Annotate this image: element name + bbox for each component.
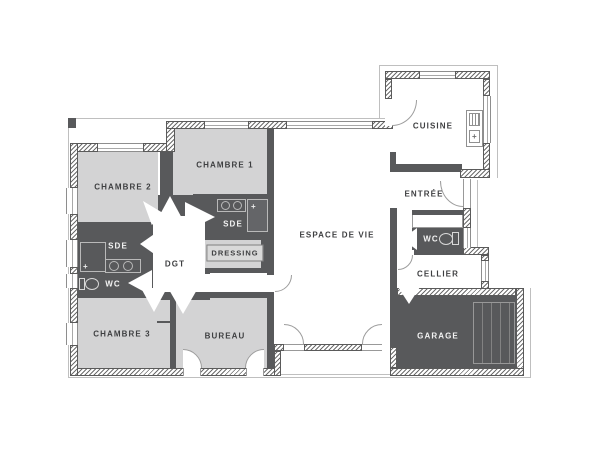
roof-outline-garage-right — [530, 288, 531, 378]
wall-bureau-right — [267, 292, 274, 372]
ext-wall-left-c — [70, 267, 78, 274]
wall-chambre3-closet — [157, 321, 173, 323]
room-dgt — [153, 216, 205, 292]
ext-wall-top-b — [248, 121, 287, 129]
window-cuisine-right — [483, 96, 491, 143]
bureau-door-right-threshold — [246, 368, 264, 376]
porch-wall-right — [390, 347, 397, 368]
label-chambre2: CHAMBRE 2 — [94, 183, 151, 192]
label-dgt: DGT — [165, 260, 185, 269]
ext-wall-front-top — [460, 169, 490, 178]
ext-wall-kitchen-top-b — [455, 71, 490, 79]
sink-bowl-icon — [123, 261, 133, 271]
front-door-opening — [463, 179, 471, 208]
label-chambre1: CHAMBRE 1 — [196, 161, 253, 170]
toilet-wc-right — [439, 233, 453, 245]
window-chambre2-top — [98, 143, 143, 152]
ext-wall-left-b — [70, 214, 78, 240]
wall-chambre2-chambre1 — [160, 152, 173, 198]
window-chambre1-top — [205, 121, 248, 129]
ext-wall-right-a — [463, 208, 471, 228]
shower-valve-icon: + — [251, 203, 256, 211]
ext-wall-garage-bottom — [390, 368, 524, 376]
window-espace-bay-top — [287, 121, 372, 129]
label-sde-left: SDE — [108, 242, 128, 251]
porch-edge-line — [281, 374, 390, 375]
wall-chambre3-bureau — [170, 298, 176, 368]
bureau-door-left-arc — [183, 349, 202, 368]
roof-outline-kitchen-left — [379, 65, 380, 119]
label-espace-de-vie: ESPACE DE VIE — [299, 231, 374, 240]
porch-wall-left — [274, 351, 281, 376]
ext-wall-left-a — [70, 143, 78, 188]
roof-outline-kitchen-top — [379, 65, 497, 66]
window-chambre3-left — [66, 323, 78, 345]
label-sde-mid: SDE — [223, 220, 243, 229]
corridor-door-arc — [275, 275, 292, 292]
label-entree: ENTRÉE — [404, 190, 443, 199]
ext-wall-kitchen-top-a — [385, 71, 420, 79]
bay-sill-hatch — [304, 344, 362, 351]
bay-door-left-arc — [284, 324, 304, 344]
cuisine-door-opening — [385, 99, 392, 126]
window-chambre2-left — [66, 188, 78, 214]
bay-door-right-arc — [362, 324, 382, 344]
corridor-dgt-espace — [197, 274, 267, 292]
label-wc-right: WC — [423, 235, 439, 244]
ext-wall-kitchen-left — [385, 79, 392, 99]
shower-valve-icon: + — [83, 263, 88, 271]
ext-wall-chambre2-top-b — [143, 143, 167, 152]
entree-closet-doors — [412, 210, 463, 215]
roof-outline-right — [477, 180, 478, 247]
wall-kitchen-bottom — [390, 164, 462, 172]
door-wedge-wc-right — [402, 228, 417, 250]
sink-bowl-icon — [233, 201, 242, 210]
label-bureau: BUREAU — [205, 332, 246, 341]
ext-wall-right-step — [463, 247, 489, 255]
corner-post — [68, 118, 76, 128]
bureau-door-right-arc — [245, 349, 264, 368]
oven-icon — [469, 113, 480, 126]
cellier-door-arc — [398, 255, 413, 270]
label-garage: GARAGE — [417, 332, 459, 341]
wall-espace-left — [267, 128, 274, 275]
label-chambre3: CHAMBRE 3 — [93, 330, 150, 339]
toilet-tank-wc-right — [452, 232, 459, 245]
ext-wall-garage-right — [516, 288, 524, 376]
ext-wall-kitchen-right-a — [483, 79, 490, 96]
toilet-wc-left — [85, 278, 99, 290]
window-cuisine-top — [420, 71, 455, 79]
floor-plan: + + + CHAMBRE 2 CHAMBRE 1 SDE DRESSING S… — [0, 0, 600, 450]
window-wc-right — [463, 228, 471, 248]
window-wc-left — [66, 274, 78, 288]
ext-wall-bay-left — [274, 344, 284, 351]
sink-bowl-icon — [109, 261, 119, 271]
roof-outline-kitchen-right — [497, 65, 498, 178]
garage-door — [473, 302, 515, 364]
window-cellier-right — [481, 261, 489, 281]
ext-wall-left-e — [70, 345, 78, 376]
roof-outline-top — [68, 118, 386, 119]
label-cuisine: CUISINE — [413, 122, 453, 131]
label-cellier: CELLIER — [417, 270, 459, 279]
bureau-door-left-threshold — [183, 368, 201, 376]
label-wc-left: WC — [105, 280, 121, 289]
label-dressing: DRESSING — [206, 245, 263, 262]
roof-outline-bottom — [68, 377, 530, 378]
ext-wall-left-d — [70, 288, 78, 323]
window-sde-left — [66, 240, 78, 267]
sink-bowl-icon — [221, 201, 230, 210]
ext-wall-top-a — [166, 121, 205, 129]
cooktop-cross-icon: + — [472, 133, 477, 141]
